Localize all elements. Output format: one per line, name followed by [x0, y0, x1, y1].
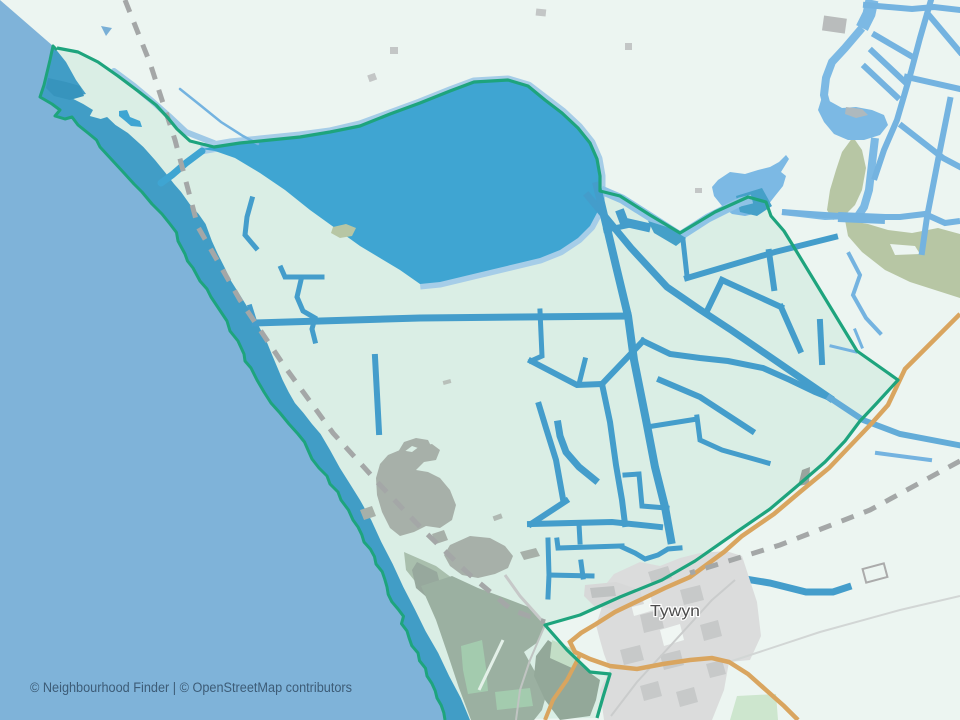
svg-text:© Neighbourhood Finder | © Ope: © Neighbourhood Finder | © OpenStreetMap… — [30, 680, 352, 696]
svg-text:Tywyn: Tywyn — [650, 603, 700, 620]
